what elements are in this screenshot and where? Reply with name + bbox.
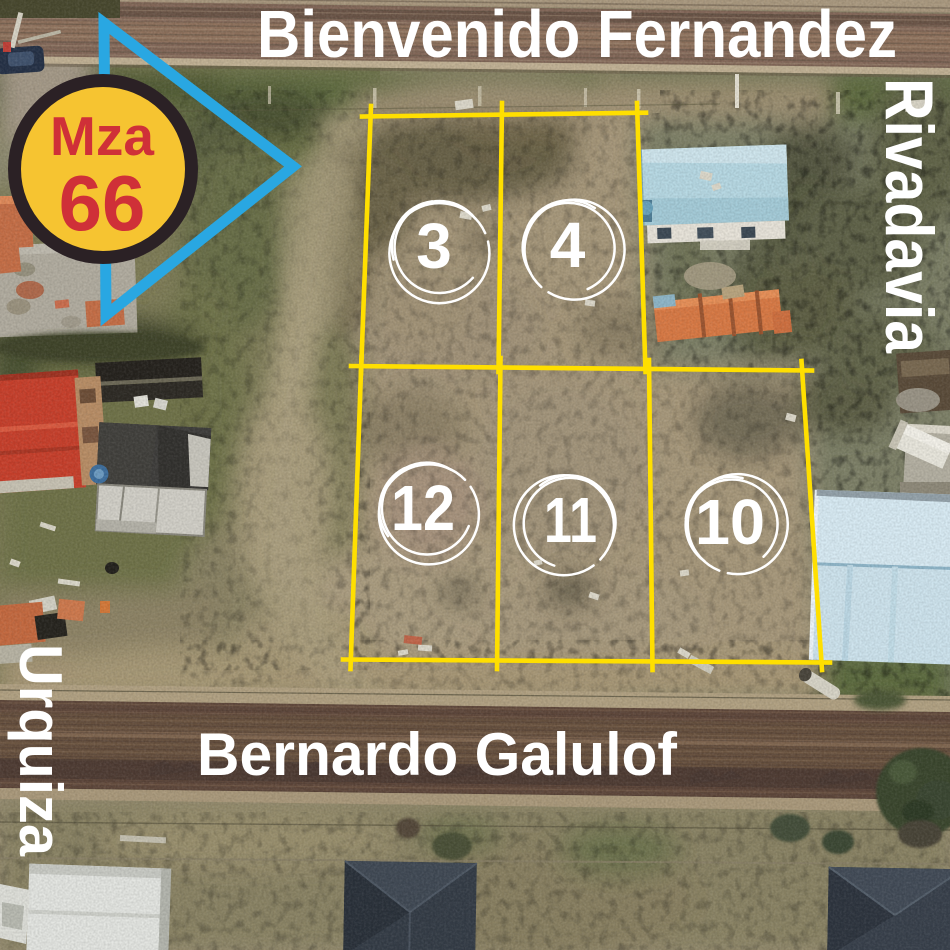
- svg-text:Bienvenido Fernandez: Bienvenido Fernandez: [257, 0, 897, 72]
- svg-text:Mza: Mza: [50, 105, 154, 167]
- svg-text:4: 4: [550, 209, 586, 281]
- svg-text:Bernardo Galulof: Bernardo Galulof: [197, 720, 678, 788]
- svg-text:12: 12: [391, 472, 455, 544]
- svg-text:Urquiza: Urquiza: [7, 644, 74, 857]
- svg-text:10: 10: [695, 486, 765, 558]
- svg-text:66: 66: [59, 159, 146, 247]
- svg-text:11: 11: [544, 484, 597, 556]
- svg-text:3: 3: [416, 210, 452, 282]
- svg-text:Rivadavia: Rivadavia: [871, 78, 947, 354]
